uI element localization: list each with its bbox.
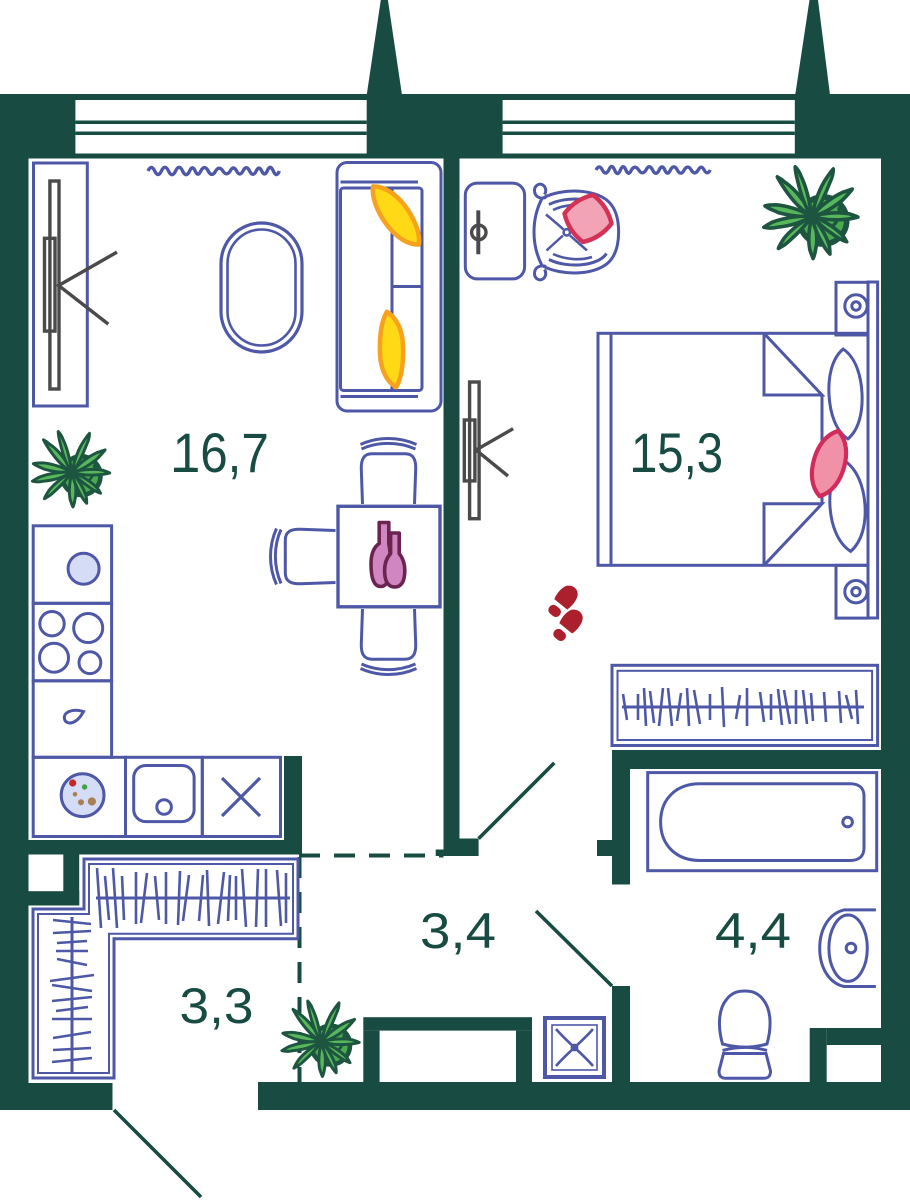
svg-text:3,4: 3,4 [420,903,496,959]
svg-text:4,4: 4,4 [715,903,791,959]
svg-text:3,3: 3,3 [180,978,254,1034]
svg-text:15,3: 15,3 [631,421,723,484]
svg-text:16,7: 16,7 [173,421,269,484]
